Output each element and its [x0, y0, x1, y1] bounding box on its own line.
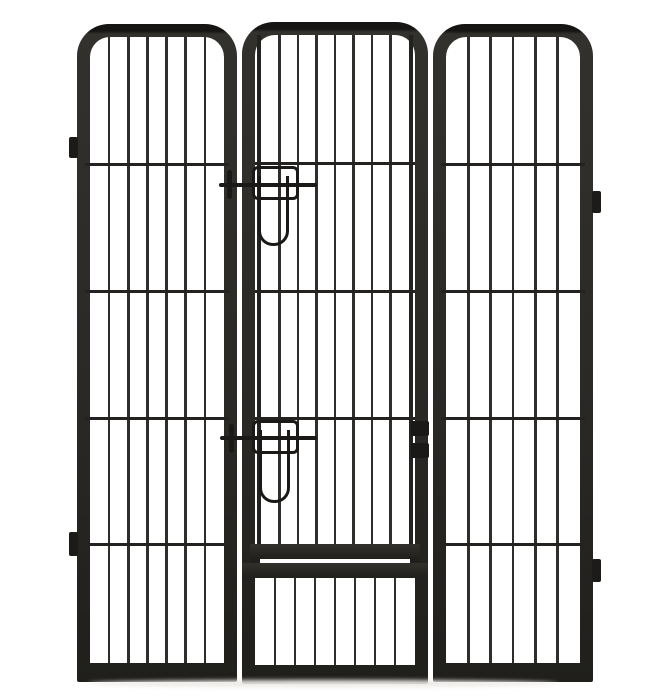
- vertical-bar: [146, 37, 149, 663]
- horizontal-crossbar: [441, 290, 585, 293]
- latch-handle: [259, 430, 290, 503]
- panel-middle: [242, 22, 428, 684]
- horizontal-crossbar: [85, 543, 229, 546]
- vertical-bar: [556, 37, 559, 663]
- vertical-bar: [534, 37, 537, 663]
- horizontal-crossbar: [85, 163, 229, 166]
- vertical-bar: [108, 37, 111, 663]
- door-horizontal-crossbar: [255, 162, 415, 165]
- bottom-section-bar: [334, 578, 337, 665]
- bottom-section-bar: [394, 578, 397, 665]
- playpen-photo: [0, 0, 648, 698]
- connector-tab: [69, 137, 78, 158]
- horizontal-crossbar: [85, 417, 229, 420]
- bottom-section-bar: [294, 578, 297, 665]
- panel-right: [433, 24, 593, 682]
- latch-handle: [258, 176, 289, 246]
- door-horizontal-crossbar: [255, 290, 415, 293]
- latch-pin: [229, 424, 234, 453]
- door-hinge: [411, 421, 429, 436]
- horizontal-crossbar: [441, 417, 585, 420]
- bottom-section-bar: [354, 578, 357, 665]
- panel-left: [77, 24, 237, 682]
- connector-tab: [592, 559, 601, 582]
- horizontal-crossbar: [441, 163, 585, 166]
- door-hinge: [411, 443, 429, 458]
- ground-shadow: [88, 680, 558, 687]
- vertical-bar: [127, 37, 130, 663]
- door-bottom-frame: [250, 544, 420, 559]
- bottom-section-bar: [314, 578, 317, 665]
- vertical-bar: [204, 37, 207, 663]
- vertical-bar: [489, 37, 492, 663]
- vertical-bar: [184, 37, 187, 663]
- bottom-section-bar: [274, 578, 277, 665]
- connector-tab: [69, 532, 78, 556]
- latch-pin: [227, 170, 232, 199]
- connector-tab: [592, 191, 601, 213]
- vertical-bar: [467, 37, 470, 663]
- panel-cross-rail: [242, 563, 428, 578]
- horizontal-crossbar: [85, 290, 229, 293]
- horizontal-crossbar: [441, 543, 585, 546]
- vertical-bar: [512, 37, 515, 663]
- vertical-bar: [165, 37, 168, 663]
- bottom-section-bar: [374, 578, 377, 665]
